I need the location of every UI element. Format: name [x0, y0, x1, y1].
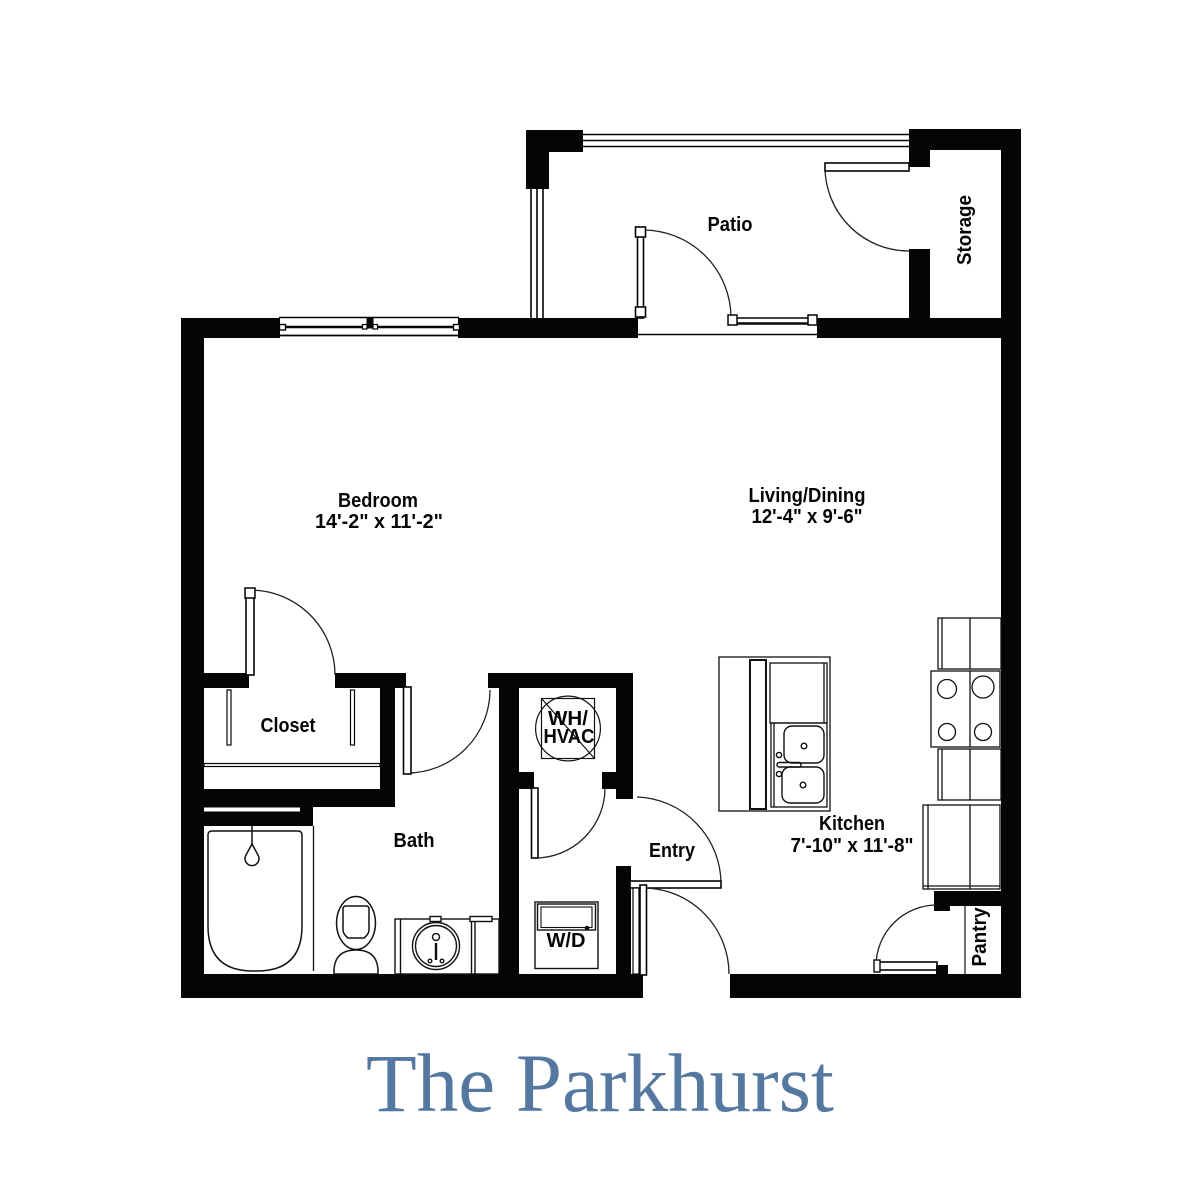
svg-text:Bedroom: Bedroom — [338, 489, 418, 512]
svg-text:W/D: W/D — [547, 929, 586, 952]
svg-text:7'-10" x 11'-8": 7'-10" x 11'-8" — [791, 834, 914, 857]
svg-text:Pantry: Pantry — [968, 907, 991, 967]
svg-text:12'-4" x 9'-6": 12'-4" x 9'-6" — [752, 505, 863, 528]
svg-text:Bath: Bath — [394, 829, 435, 852]
svg-text:The Parkhurst: The Parkhurst — [366, 1037, 834, 1129]
svg-text:Storage: Storage — [953, 195, 976, 265]
svg-text:Living/Dining: Living/Dining — [749, 484, 866, 507]
svg-text:Closet: Closet — [261, 714, 316, 737]
svg-text:Kitchen: Kitchen — [819, 812, 885, 835]
svg-text:Patio: Patio — [708, 213, 753, 236]
svg-text:Entry: Entry — [649, 839, 696, 862]
svg-text:HVAC: HVAC — [544, 725, 595, 748]
svg-text:14'-2" x 11'-2": 14'-2" x 11'-2" — [315, 510, 443, 533]
